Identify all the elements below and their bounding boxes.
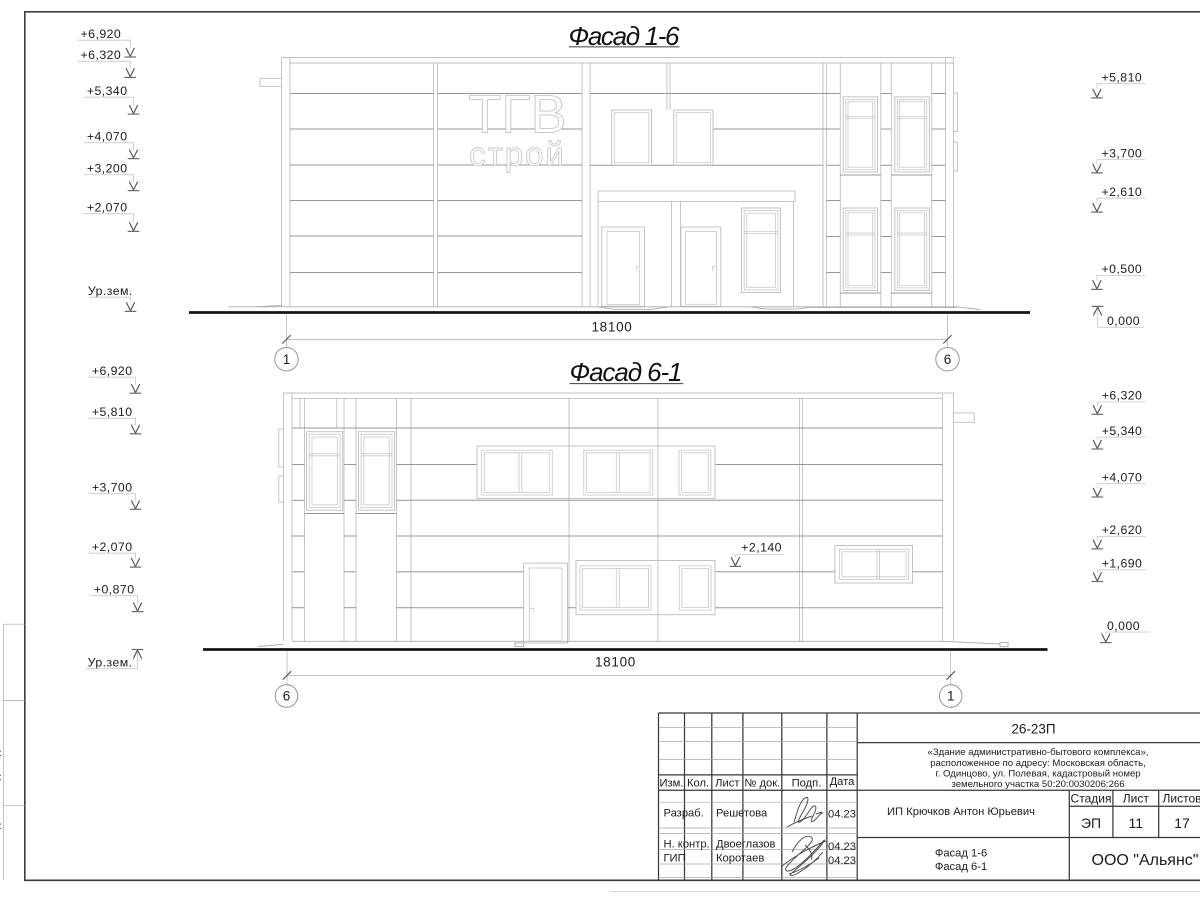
svg-text:Подп. и дата: Подп. и дата bbox=[0, 735, 2, 792]
svg-text:+0,500: +0,500 bbox=[1102, 262, 1143, 276]
svg-text:+2,140: +2,140 bbox=[741, 541, 782, 555]
svg-text:«Здание административно-бытово: «Здание административно-бытового комплек… bbox=[927, 747, 1148, 758]
svg-text:17: 17 bbox=[1174, 815, 1190, 831]
svg-text:Фасад 1-6: Фасад 1-6 bbox=[935, 848, 987, 860]
svg-text:Разраб.: Разраб. bbox=[664, 808, 704, 820]
svg-text:Изм.: Изм. bbox=[660, 777, 684, 789]
svg-text:+3,200: +3,200 bbox=[87, 162, 128, 176]
svg-text:г. Одинцово, ул. Полевая, када: г. Одинцово, ул. Полевая, кадастровый но… bbox=[935, 768, 1140, 779]
svg-text:+5,340: +5,340 bbox=[87, 84, 128, 98]
svg-text:1: 1 bbox=[283, 352, 291, 367]
svg-text:18100: 18100 bbox=[591, 320, 632, 335]
svg-text:Инв. № подл.: Инв. № подл. bbox=[0, 815, 2, 875]
svg-text:Стадия: Стадия bbox=[1071, 792, 1112, 806]
svg-text:ЭП: ЭП bbox=[1081, 815, 1101, 831]
svg-text:Лист: Лист bbox=[1123, 792, 1150, 806]
svg-text:Двоеглазов: Двоеглазов bbox=[716, 839, 776, 851]
svg-text:Ур.зем.: Ур.зем. bbox=[88, 656, 133, 670]
svg-text:04.23: 04.23 bbox=[828, 809, 856, 821]
svg-text:Ур.зем.: Ур.зем. bbox=[88, 284, 133, 298]
svg-text:Кол.: Кол. bbox=[687, 777, 709, 789]
svg-text:Листов: Листов bbox=[1163, 792, 1200, 806]
svg-text:Коротаев: Коротаев bbox=[716, 853, 764, 865]
svg-text:04.23: 04.23 bbox=[828, 841, 856, 853]
svg-text:+6,320: +6,320 bbox=[1102, 389, 1143, 403]
svg-text:11: 11 bbox=[1129, 815, 1144, 831]
svg-text:0,000: 0,000 bbox=[1107, 314, 1140, 328]
svg-text:18100: 18100 bbox=[595, 655, 636, 670]
svg-text:+2,070: +2,070 bbox=[87, 201, 128, 215]
svg-text:Н. контр.: Н. контр. bbox=[664, 839, 710, 851]
svg-text:Фасад 6-1: Фасад 6-1 bbox=[570, 357, 683, 387]
svg-text:Подп.: Подп. bbox=[792, 777, 822, 789]
svg-text:+5,810: +5,810 bbox=[92, 405, 133, 419]
svg-text:+0,870: +0,870 bbox=[94, 583, 135, 597]
svg-text:0,000: 0,000 bbox=[1107, 619, 1140, 633]
svg-text:6: 6 bbox=[944, 352, 952, 367]
svg-text:+2,620: +2,620 bbox=[1102, 523, 1143, 537]
svg-text:Лист: Лист bbox=[715, 777, 739, 789]
svg-text:Решетова: Решетова bbox=[716, 808, 768, 820]
svg-text:1: 1 bbox=[947, 689, 955, 704]
svg-text:+5,810: +5,810 bbox=[1102, 71, 1143, 85]
svg-text:+4,070: +4,070 bbox=[1102, 471, 1143, 485]
svg-text:04.23: 04.23 bbox=[828, 855, 856, 867]
svg-text:строй: строй bbox=[469, 135, 566, 172]
svg-text:Фасад 6-1: Фасад 6-1 bbox=[935, 861, 987, 873]
svg-text:+6,920: +6,920 bbox=[81, 27, 122, 41]
svg-text:+6,320: +6,320 bbox=[81, 48, 122, 62]
svg-text:№ док.: № док. bbox=[744, 777, 780, 789]
svg-text:+3,700: +3,700 bbox=[92, 481, 133, 495]
svg-text:Дата: Дата bbox=[830, 776, 856, 788]
svg-text:+1,690: +1,690 bbox=[1102, 557, 1143, 571]
svg-text:+5,340: +5,340 bbox=[1102, 424, 1143, 438]
svg-text:ООО "Альянс": ООО "Альянс" bbox=[1092, 852, 1199, 869]
svg-text:ГИП: ГИП bbox=[664, 853, 686, 865]
svg-text:26-23П: 26-23П bbox=[1011, 722, 1055, 737]
svg-text:ИП Крючков Антон Юрьевич: ИП Крючков Антон Юрьевич bbox=[887, 806, 1035, 818]
svg-text:расположенное по адресу: Моско: расположенное по адресу: Московская обла… bbox=[930, 758, 1146, 769]
svg-text:+6,920: +6,920 bbox=[92, 364, 133, 378]
svg-text:6: 6 bbox=[283, 689, 291, 704]
svg-text:+3,700: +3,700 bbox=[1102, 146, 1143, 160]
svg-text:+2,070: +2,070 bbox=[92, 540, 133, 554]
svg-text:+4,070: +4,070 bbox=[87, 130, 128, 144]
svg-text:+2,610: +2,610 bbox=[1102, 185, 1143, 199]
svg-text:земельного участка 50:20:00302: земельного участка 50:20:0030206:266 bbox=[951, 779, 1124, 790]
